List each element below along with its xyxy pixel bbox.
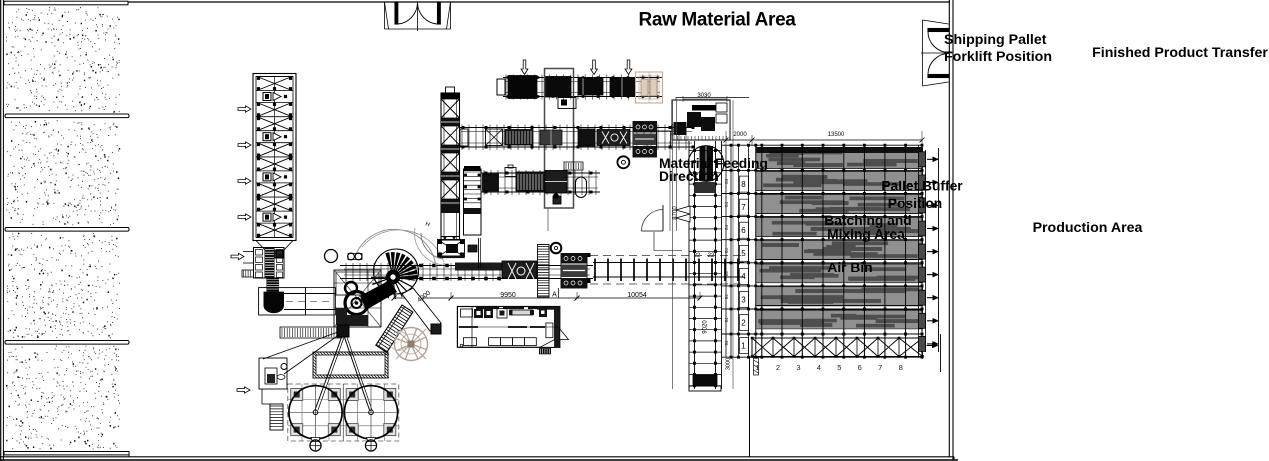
svg-text:5: 5 — [837, 363, 841, 372]
svg-text:9020: 9020 — [703, 320, 709, 334]
svg-text:Direction: Direction — [659, 169, 719, 184]
svg-text:84: 84 — [724, 178, 729, 184]
svg-text:Mixing Area: Mixing Area — [827, 227, 905, 242]
svg-text:A: A — [552, 292, 557, 299]
svg-text:8700: 8700 — [673, 206, 679, 220]
svg-text:5: 5 — [741, 249, 746, 258]
svg-text:13500: 13500 — [828, 132, 845, 138]
svg-text:3: 3 — [796, 363, 800, 372]
svg-text:8: 8 — [899, 363, 903, 372]
svg-text:84: 84 — [724, 317, 729, 323]
svg-text:84: 84 — [724, 340, 729, 346]
svg-text:Air Bin: Air Bin — [827, 260, 872, 275]
svg-text:84: 84 — [724, 248, 729, 254]
svg-text:3: 3 — [741, 295, 746, 304]
svg-text:Position: Position — [888, 196, 942, 211]
svg-text:6: 6 — [858, 363, 862, 372]
svg-text:2: 2 — [741, 318, 746, 327]
svg-text:1: 1 — [741, 341, 746, 350]
svg-text:7: 7 — [878, 363, 882, 372]
svg-text:Production Area: Production Area — [1033, 220, 1143, 236]
svg-text:4: 4 — [817, 363, 821, 372]
svg-text:7: 7 — [741, 203, 746, 212]
svg-text:Pallet Buffer: Pallet Buffer — [881, 179, 963, 194]
svg-text:4: 4 — [741, 272, 746, 281]
svg-text:3000: 3000 — [726, 358, 732, 370]
svg-text:6: 6 — [741, 226, 746, 235]
svg-text:22: 22 — [708, 253, 715, 259]
svg-text:84: 84 — [724, 271, 729, 277]
svg-text:84: 84 — [724, 225, 729, 231]
svg-text:9950: 9950 — [500, 292, 516, 299]
svg-text:Batching and: Batching and — [824, 213, 911, 228]
svg-text:Finished Product Transfer: Finished Product Transfer — [1092, 45, 1268, 61]
svg-text:22: 22 — [694, 253, 701, 259]
svg-text:2: 2 — [776, 363, 780, 372]
svg-text:Shipping Pallet: Shipping Pallet — [944, 32, 1047, 48]
svg-text:8: 8 — [741, 180, 746, 189]
svg-text:84: 84 — [724, 201, 729, 207]
svg-text:Forklift Position: Forklift Position — [944, 49, 1052, 65]
svg-text:Raw Material Area: Raw Material Area — [638, 10, 796, 31]
svg-text:2000: 2000 — [733, 132, 747, 138]
svg-text:3030: 3030 — [697, 93, 711, 99]
svg-text:6280: 6280 — [671, 124, 677, 135]
svg-text:84: 84 — [724, 294, 729, 300]
svg-text:10054: 10054 — [627, 292, 647, 299]
